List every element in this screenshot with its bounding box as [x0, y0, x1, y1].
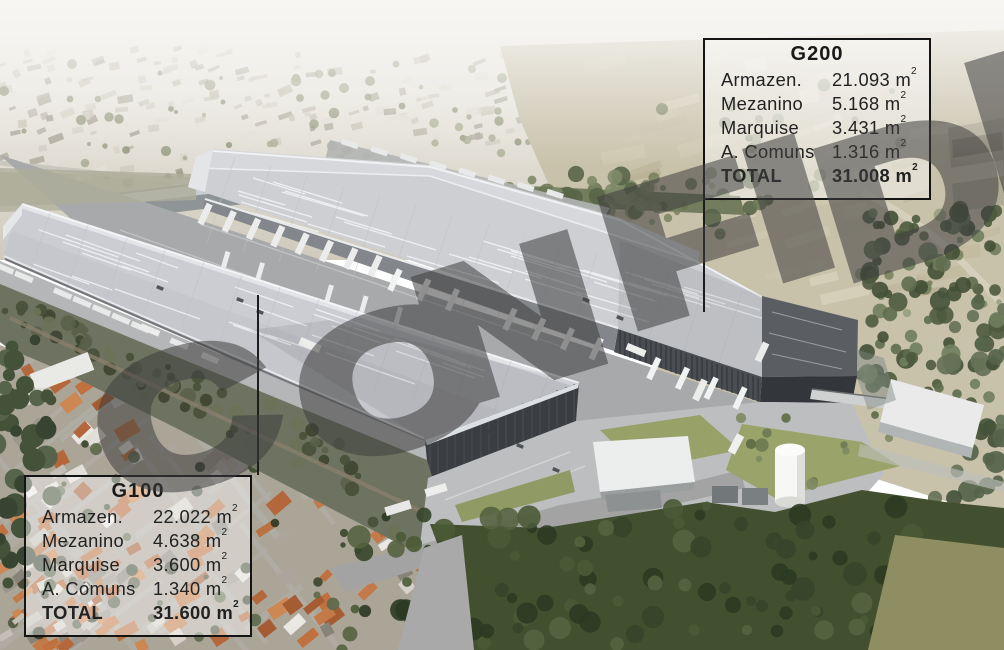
- svg-text:C: C: [70, 294, 300, 543]
